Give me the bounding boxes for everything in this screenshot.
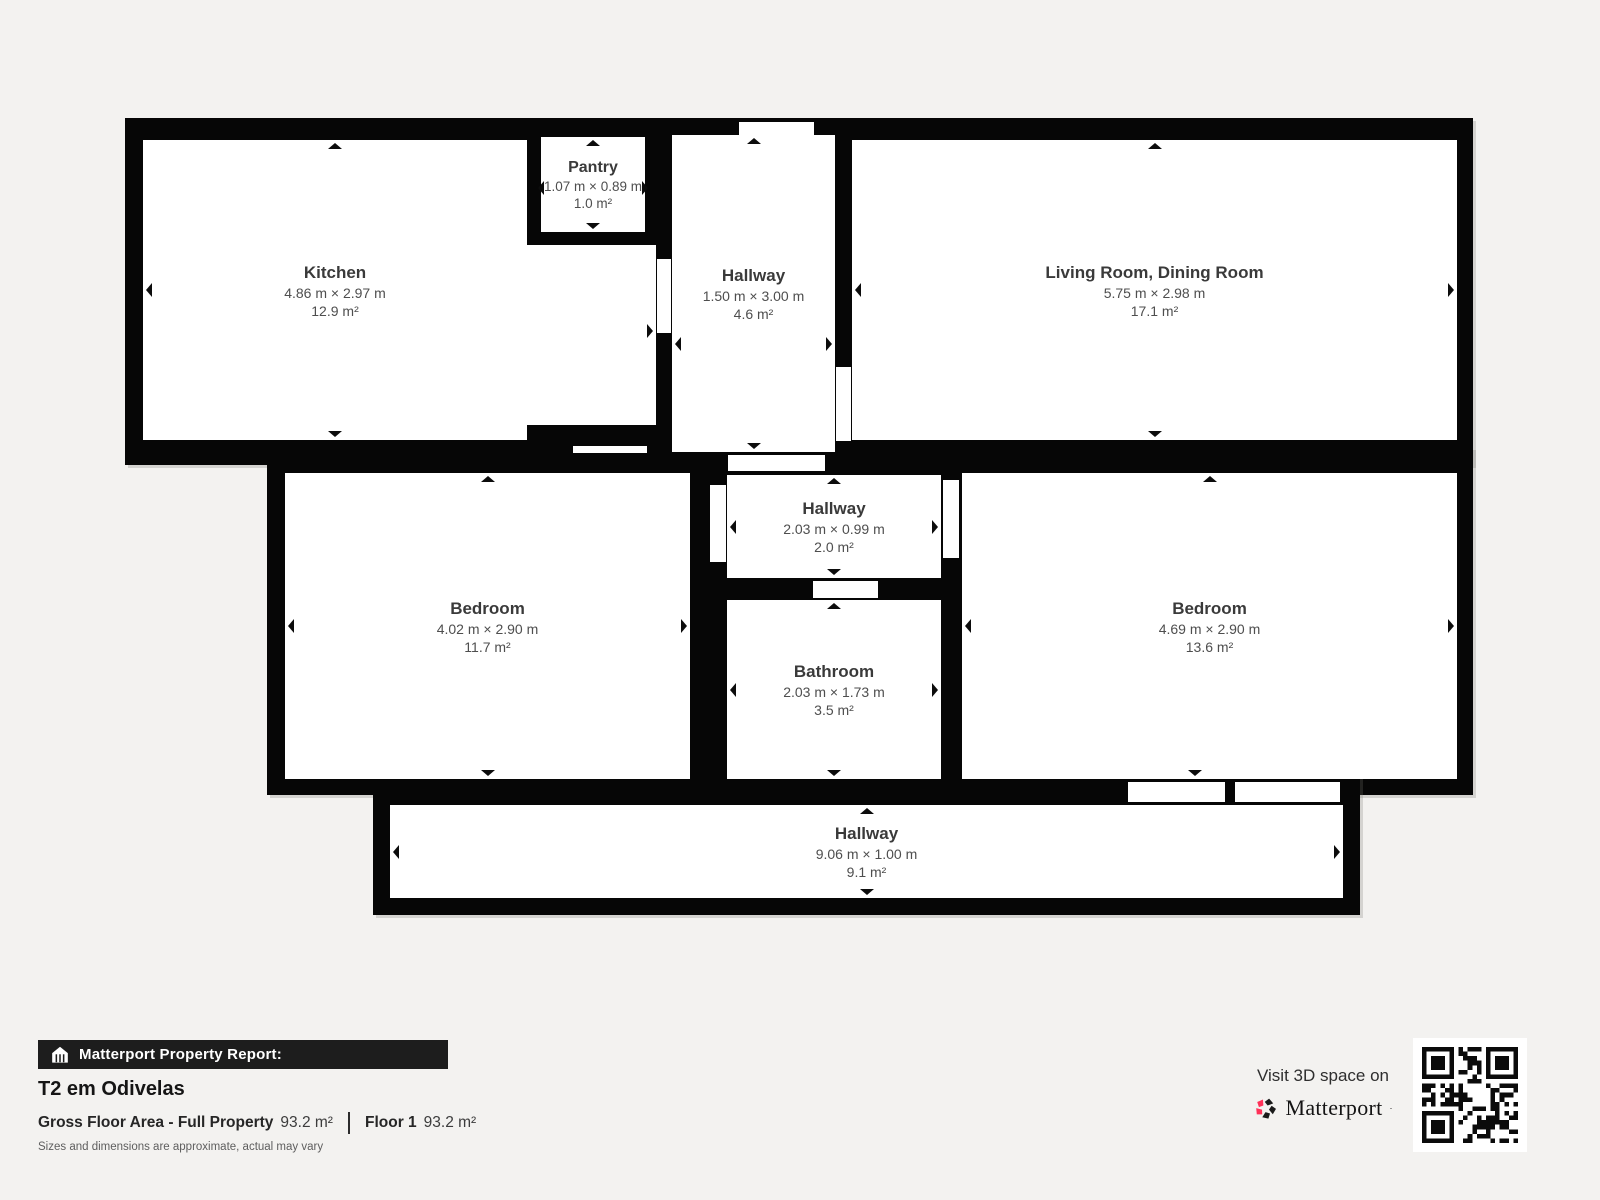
dimension-arrow-left-icon — [675, 337, 681, 351]
matterport-house-icon — [51, 1046, 69, 1064]
room-hallway-middle: Hallway 2.03 m × 0.99 m 2.0 m² — [727, 475, 941, 578]
room-living-dining: Living Room, Dining Room 5.75 m × 2.98 m… — [852, 140, 1457, 440]
room-area: 11.7 m² — [464, 638, 510, 656]
dimension-arrow-up-icon — [328, 143, 342, 149]
room-bathroom: Bathroom 2.03 m × 1.73 m 3.5 m² — [727, 600, 941, 779]
dimension-arrow-up-icon — [747, 138, 761, 144]
room-dimensions: 4.69 m × 2.90 m — [1159, 620, 1261, 638]
door-opening — [573, 446, 647, 453]
room-label: Pantry 1.07 m × 0.89 m 1.0 m² — [541, 137, 645, 232]
trademark-dot: · — [1390, 1103, 1393, 1113]
room-dimensions: 1.07 m × 0.89 m — [544, 178, 642, 195]
room-label: Hallway 2.03 m × 0.99 m 2.0 m² — [727, 475, 941, 578]
dimension-arrow-right-icon — [681, 619, 687, 633]
room-name: Living Room, Dining Room — [1045, 261, 1263, 284]
room-label: Bedroom 4.69 m × 2.90 m 13.6 m² — [962, 473, 1457, 779]
report-banner-label: Matterport Property Report: — [79, 1046, 282, 1063]
room-name: Kitchen — [304, 261, 366, 284]
dimension-arrow-up-icon — [1203, 476, 1217, 482]
dimension-arrow-up-icon — [860, 808, 874, 814]
dimension-arrow-down-icon — [827, 569, 841, 575]
dimension-arrow-right-icon — [826, 337, 832, 351]
dimension-arrow-left-icon — [855, 283, 861, 297]
qr-code — [1413, 1038, 1527, 1152]
dimension-arrow-left-icon — [965, 619, 971, 633]
visit-3d-text: Visit 3D space on — [1223, 1066, 1423, 1086]
room-area: 4.6 m² — [734, 305, 774, 323]
room-name: Bathroom — [794, 660, 874, 683]
dimension-arrow-left-icon — [288, 619, 294, 633]
dimension-arrow-down-icon — [827, 770, 841, 776]
door-opening — [728, 455, 825, 471]
dimension-arrow-down-icon — [1148, 431, 1162, 437]
property-title: T2 em Odivelas — [38, 1078, 185, 1101]
room-label: Kitchen 4.86 m × 2.97 m 12.9 m² — [143, 140, 527, 440]
room-name: Hallway — [722, 264, 785, 287]
room-name: Bedroom — [450, 597, 525, 620]
dimension-arrow-down-icon — [586, 223, 600, 229]
room-dimensions: 1.50 m × 3.00 m — [703, 287, 805, 305]
dimension-arrow-up-icon — [586, 140, 600, 146]
room-kitchen-extension — [527, 245, 656, 425]
dimension-arrow-down-icon — [747, 443, 761, 449]
dimension-arrow-up-icon — [827, 603, 841, 609]
room-label: Bedroom 4.02 m × 2.90 m 11.7 m² — [285, 473, 690, 779]
room-area: 9.1 m² — [847, 863, 887, 881]
gross-area-value: 93.2 m² — [280, 1114, 333, 1132]
matterport-wordmark: Matterport — [1285, 1095, 1382, 1121]
room-dimensions: 2.03 m × 0.99 m — [783, 520, 885, 538]
room-dimensions: 4.86 m × 2.97 m — [284, 284, 386, 302]
room-name: Bedroom — [1172, 597, 1247, 620]
dimension-arrow-left-icon — [730, 520, 736, 534]
room-dimensions: 9.06 m × 1.00 m — [816, 845, 918, 863]
dimension-arrow-up-icon — [481, 476, 495, 482]
room-hallway-top: Hallway 1.50 m × 3.00 m 4.6 m² — [672, 135, 835, 452]
room-area: 3.5 m² — [814, 701, 854, 719]
room-dimensions: 4.02 m × 2.90 m — [437, 620, 539, 638]
dimension-arrow-left-icon — [538, 181, 544, 195]
door-opening — [710, 485, 726, 562]
room-name: Pantry — [568, 157, 618, 178]
dimension-arrow-left-icon — [393, 845, 399, 859]
door-opening — [739, 122, 814, 136]
room-label: Bathroom 2.03 m × 1.73 m 3.5 m² — [727, 600, 941, 779]
door-opening — [836, 367, 851, 441]
room-dimensions: 2.03 m × 1.73 m — [783, 683, 885, 701]
dimension-arrow-right-icon — [642, 181, 648, 195]
room-area: 2.0 m² — [814, 538, 854, 556]
door-opening — [657, 259, 671, 333]
room-area: 17.1 m² — [1131, 302, 1178, 320]
room-dimensions: 5.75 m × 2.98 m — [1104, 284, 1206, 302]
dimension-arrow-right-icon — [932, 683, 938, 697]
door-opening — [1128, 782, 1225, 802]
matterport-brand-row: Matterport · — [1223, 1095, 1423, 1121]
door-opening — [1235, 782, 1340, 802]
visit-3d-block: Visit 3D space on Matterport · — [1223, 1066, 1423, 1121]
door-opening — [943, 480, 959, 558]
room-bedroom-right: Bedroom 4.69 m × 2.90 m 13.6 m² — [962, 473, 1457, 779]
stats-divider — [348, 1112, 350, 1134]
dimension-arrow-down-icon — [481, 770, 495, 776]
report-banner: Matterport Property Report: — [38, 1040, 448, 1069]
dimension-arrow-down-icon — [860, 889, 874, 895]
dimension-arrow-right-icon — [1448, 283, 1454, 297]
dimension-arrow-down-icon — [1188, 770, 1202, 776]
room-pantry: Pantry 1.07 m × 0.89 m 1.0 m² — [541, 137, 645, 232]
size-disclaimer: Sizes and dimensions are approximate, ac… — [38, 1141, 323, 1153]
gross-area-label: Gross Floor Area - Full Property — [38, 1114, 273, 1132]
room-label: Living Room, Dining Room 5.75 m × 2.98 m… — [852, 140, 1457, 440]
dimension-arrow-right-icon — [932, 520, 938, 534]
stats-row: Gross Floor Area - Full Property 93.2 m²… — [38, 1112, 476, 1134]
dimension-arrow-left-icon — [730, 683, 736, 697]
room-area: 12.9 m² — [311, 302, 358, 320]
dimension-arrow-right-icon — [647, 324, 653, 338]
matterport-logo-icon — [1253, 1096, 1278, 1121]
room-area: 13.6 m² — [1186, 638, 1233, 656]
dimension-arrow-up-icon — [1148, 143, 1162, 149]
room-name: Hallway — [802, 497, 865, 520]
room-label: Hallway 1.50 m × 3.00 m 4.6 m² — [672, 135, 835, 452]
floor-plan: Kitchen 4.86 m × 2.97 m 12.9 m² Pantry 1… — [0, 0, 1600, 1200]
room-kitchen: Kitchen 4.86 m × 2.97 m 12.9 m² — [143, 140, 527, 440]
room-hallway-bottom: Hallway 9.06 m × 1.00 m 9.1 m² — [390, 805, 1343, 898]
floor-value: 93.2 m² — [424, 1114, 477, 1132]
dimension-arrow-right-icon — [1334, 845, 1340, 859]
floor-label: Floor 1 — [365, 1114, 417, 1132]
room-area: 1.0 m² — [574, 195, 612, 212]
room-label: Hallway 9.06 m × 1.00 m 9.1 m² — [390, 805, 1343, 898]
dimension-arrow-up-icon — [827, 478, 841, 484]
dimension-arrow-left-icon — [146, 283, 152, 297]
door-opening — [813, 581, 878, 598]
dimension-arrow-down-icon — [328, 431, 342, 437]
dimension-arrow-right-icon — [1448, 619, 1454, 633]
room-name: Hallway — [835, 822, 898, 845]
room-bedroom-left: Bedroom 4.02 m × 2.90 m 11.7 m² — [285, 473, 690, 779]
